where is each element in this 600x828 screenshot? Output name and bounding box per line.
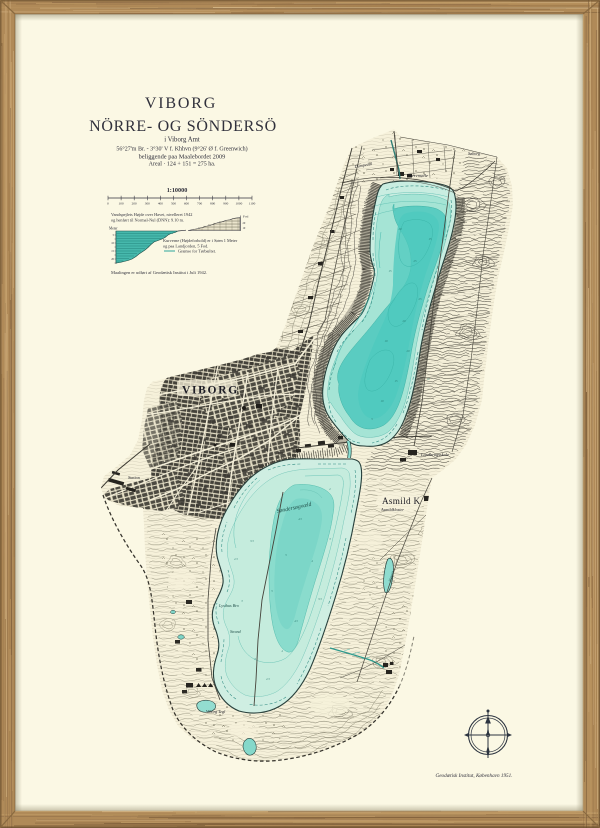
- svg-text:2.5: 2.5: [234, 557, 238, 561]
- svg-text:VIBORG: VIBORG: [182, 385, 239, 397]
- svg-text:Nørremølle: Nørremølle: [406, 173, 428, 178]
- svg-text:900: 900: [223, 202, 228, 206]
- svg-text:800: 800: [210, 202, 215, 206]
- svg-text:Kurverne (Højdeforhold) er i S: Kurverne (Højdeforhold) er i Søen 1 Mete…: [163, 238, 238, 243]
- svg-text:Station: Station: [128, 475, 140, 480]
- svg-text:25: 25: [414, 259, 418, 263]
- svg-text:500: 500: [171, 202, 176, 206]
- svg-text:20: 20: [399, 227, 403, 231]
- svg-text:2.5: 2.5: [266, 677, 270, 681]
- svg-text:NÖRRE- OG SÖNDERSÖ: NÖRRE- OG SÖNDERSÖ: [89, 117, 277, 135]
- svg-text:Geodætisk Institut, København: Geodætisk Institut, København 1951.: [435, 773, 512, 779]
- svg-text:20: 20: [407, 349, 411, 353]
- svg-text:10: 10: [427, 377, 431, 381]
- svg-text:15: 15: [395, 379, 399, 383]
- svg-text:15: 15: [389, 269, 393, 273]
- svg-text:Asmildkloster: Asmildkloster: [380, 507, 404, 512]
- svg-text:10: 10: [385, 339, 389, 343]
- svg-text:20: 20: [403, 319, 407, 323]
- svg-text:1100: 1100: [249, 202, 256, 206]
- svg-text:VIBORG: VIBORG: [145, 95, 217, 112]
- svg-text:700: 700: [197, 202, 202, 206]
- svg-text:15: 15: [429, 237, 433, 241]
- svg-text:100: 100: [119, 202, 124, 206]
- svg-text:beliggende paa Maalebordet 200: beliggende paa Maalebordet 2009: [139, 154, 226, 161]
- svg-text:600: 600: [184, 202, 189, 206]
- svg-text:3.5: 3.5: [318, 597, 322, 601]
- svg-text:4.5: 4.5: [298, 517, 302, 521]
- svg-text:4.5: 4.5: [294, 619, 298, 623]
- svg-text:Fod: Fod: [243, 215, 249, 219]
- svg-text:og henført til Normal-Nul (DNN: og henført til Normal-Nul (DNN): 9.10 m.: [111, 218, 184, 223]
- svg-text:Maalingen er udført af Geodæti: Maalingen er udført af Geodætisk Institu…: [111, 270, 207, 275]
- svg-text:Grænse for Tørbæltet.: Grænse for Tørbæltet.: [178, 249, 216, 254]
- svg-text:10: 10: [381, 399, 385, 403]
- svg-text:0: 0: [107, 202, 109, 206]
- svg-text:1000: 1000: [236, 202, 243, 206]
- svg-text:56°27'm Br. - 3°30' V f. Khhvn: 56°27'm Br. - 3°30' V f. Khhvn (9°26' Ø …: [116, 146, 247, 153]
- svg-text:200: 200: [132, 202, 137, 206]
- svg-text:3.5: 3.5: [250, 539, 254, 543]
- svg-text:Lysthus Bro: Lysthus Bro: [218, 603, 239, 608]
- svg-text:25: 25: [419, 297, 423, 301]
- svg-text:Areal · 124 + 151 = 275 ha.: Areal · 124 + 151 = 275 ha.: [149, 162, 216, 168]
- svg-text:i Viborg Amt: i Viborg Amt: [164, 137, 200, 144]
- svg-text:Søborg: Søborg: [468, 151, 480, 156]
- svg-text:Strand: Strand: [230, 629, 242, 634]
- svg-text:Asmild K: Asmild K: [382, 496, 420, 506]
- svg-text:1:10000: 1:10000: [167, 187, 188, 194]
- svg-text:400: 400: [158, 202, 163, 206]
- svg-text:300: 300: [145, 202, 150, 206]
- svg-text:Landbrugsskole: Landbrugsskole: [420, 452, 449, 457]
- svg-text:Meter: Meter: [109, 227, 118, 231]
- svg-text:Viborg Tegl: Viborg Tegl: [206, 709, 226, 714]
